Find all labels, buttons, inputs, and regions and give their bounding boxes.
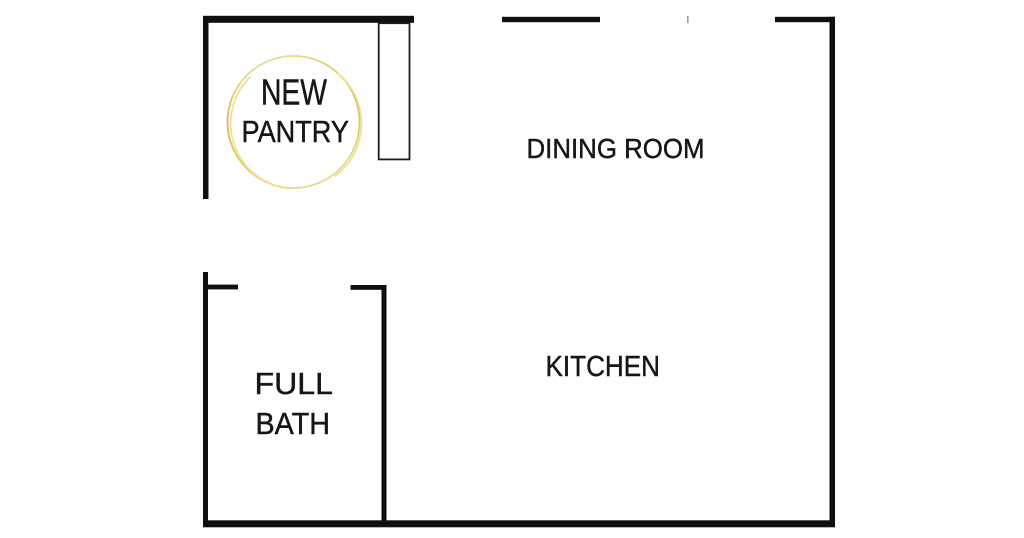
svg-text:NEW: NEW <box>261 72 327 113</box>
svg-text:PANTRY: PANTRY <box>242 114 350 149</box>
svg-text:FULL: FULL <box>255 366 334 401</box>
svg-text:DINING ROOM: DINING ROOM <box>527 133 705 164</box>
svg-text:BATH: BATH <box>256 406 331 441</box>
svg-text:KITCHEN: KITCHEN <box>546 351 661 383</box>
